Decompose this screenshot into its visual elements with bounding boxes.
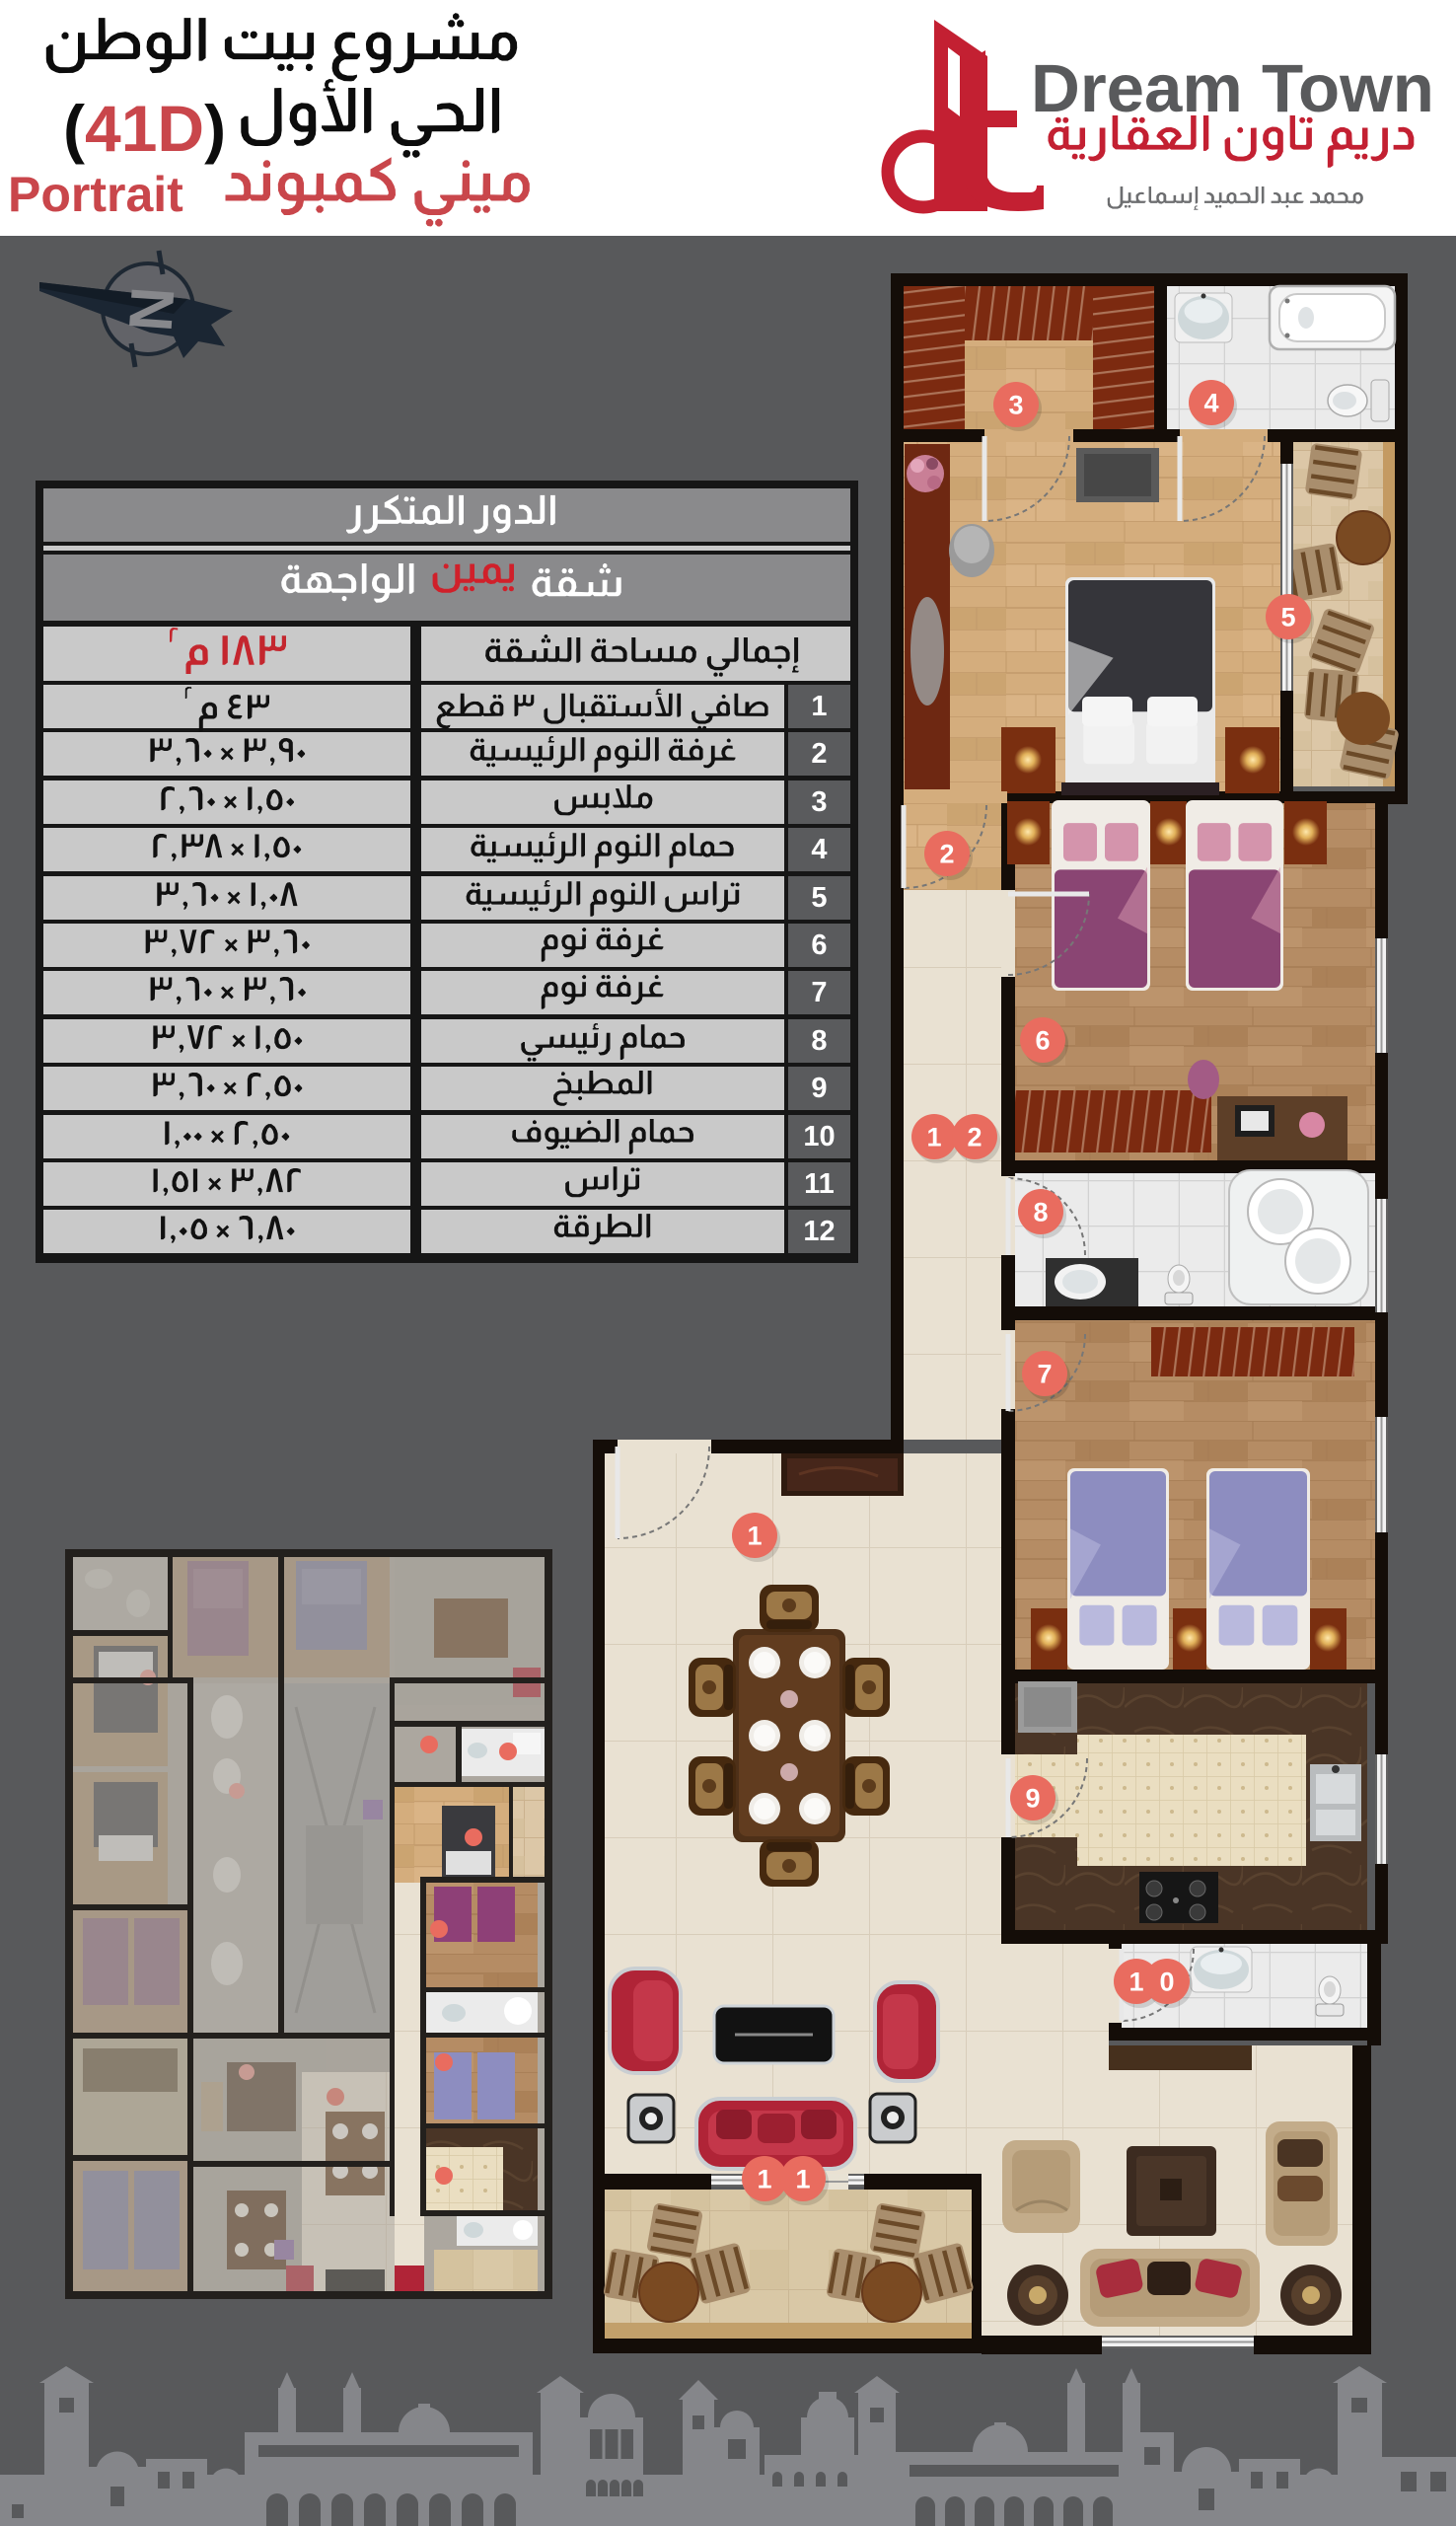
svg-text:1: 1 <box>795 2165 810 2194</box>
svg-text:5: 5 <box>1280 603 1295 632</box>
svg-text:N: N <box>117 285 188 334</box>
svg-text:1: 1 <box>747 1522 762 1551</box>
svg-text:6: 6 <box>1035 1026 1050 1056</box>
svg-text:9: 9 <box>1025 1784 1040 1814</box>
svg-text:0: 0 <box>1159 1968 1174 1997</box>
svg-text:2: 2 <box>939 840 954 869</box>
svg-text:1: 1 <box>926 1123 941 1152</box>
svg-text:1: 1 <box>1128 1968 1143 1997</box>
svg-text:1: 1 <box>757 2165 771 2194</box>
svg-text:4: 4 <box>1203 389 1218 418</box>
svg-text:3: 3 <box>1008 391 1023 420</box>
svg-text:2: 2 <box>967 1123 982 1152</box>
svg-text:8: 8 <box>1033 1198 1048 1227</box>
svg-text:7: 7 <box>1037 1360 1052 1389</box>
